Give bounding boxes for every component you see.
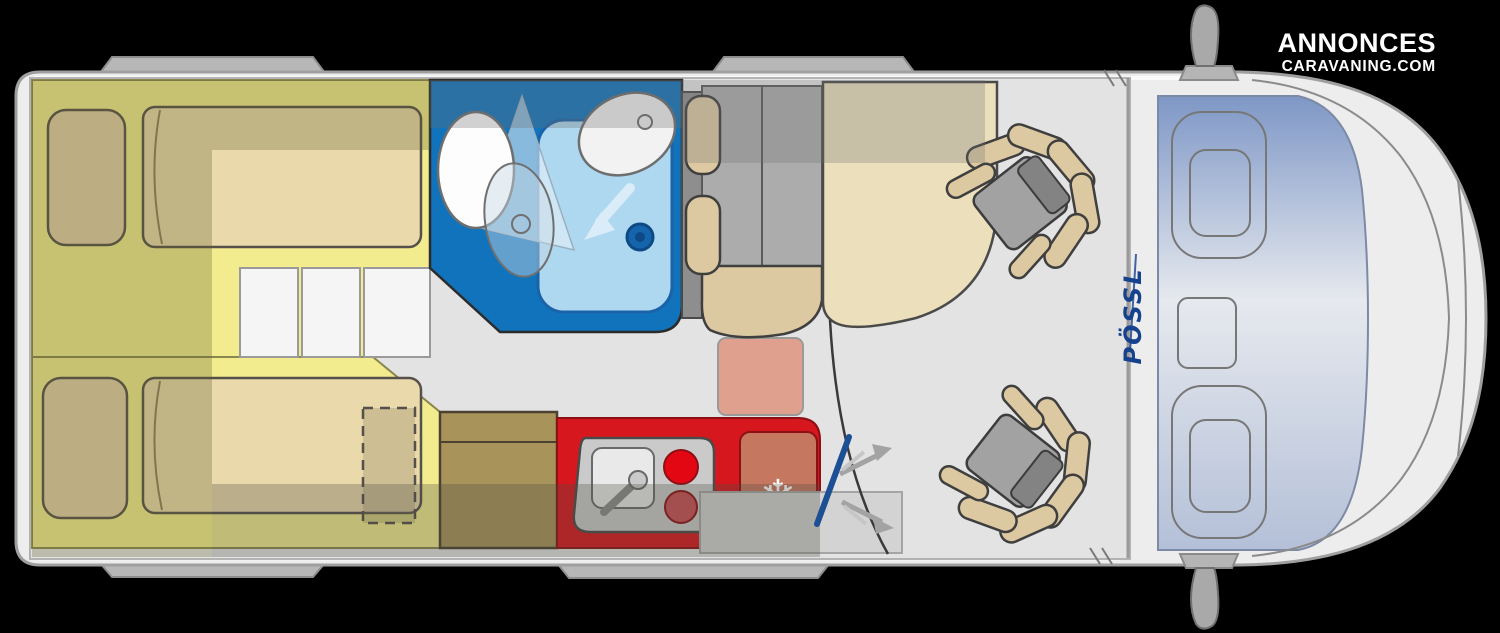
mirror-arm	[1191, 568, 1218, 629]
watermark-line1: ANNONCES	[1277, 30, 1436, 57]
hob-burner	[664, 450, 698, 484]
drawer	[302, 268, 360, 357]
bed-step-drawers	[240, 268, 430, 357]
mirror-base	[1180, 554, 1238, 568]
overhead-locker-bed	[212, 80, 430, 150]
overhead-locker-kitchen-side	[212, 484, 820, 557]
overhead-locker-bathroom	[430, 80, 682, 128]
floorplan-image: ❄	[0, 0, 1500, 633]
bench-armrest	[686, 196, 720, 274]
campervan-floorplan: ❄	[0, 0, 1500, 633]
drawer	[240, 268, 298, 357]
drawer	[364, 268, 430, 357]
watermark-line2: CARAVANING.COM	[1277, 59, 1436, 75]
mirror-base	[1180, 66, 1238, 80]
overhead-locker-dinette	[682, 80, 985, 163]
bench-cushion	[702, 266, 822, 337]
heater-unit	[718, 338, 803, 415]
site-watermark: ANNONCES CARAVANING.COM	[1277, 30, 1436, 75]
shower-drain-center	[635, 232, 645, 242]
overhead-locker-rear-wall	[32, 80, 212, 557]
mirror-arm	[1191, 5, 1218, 66]
